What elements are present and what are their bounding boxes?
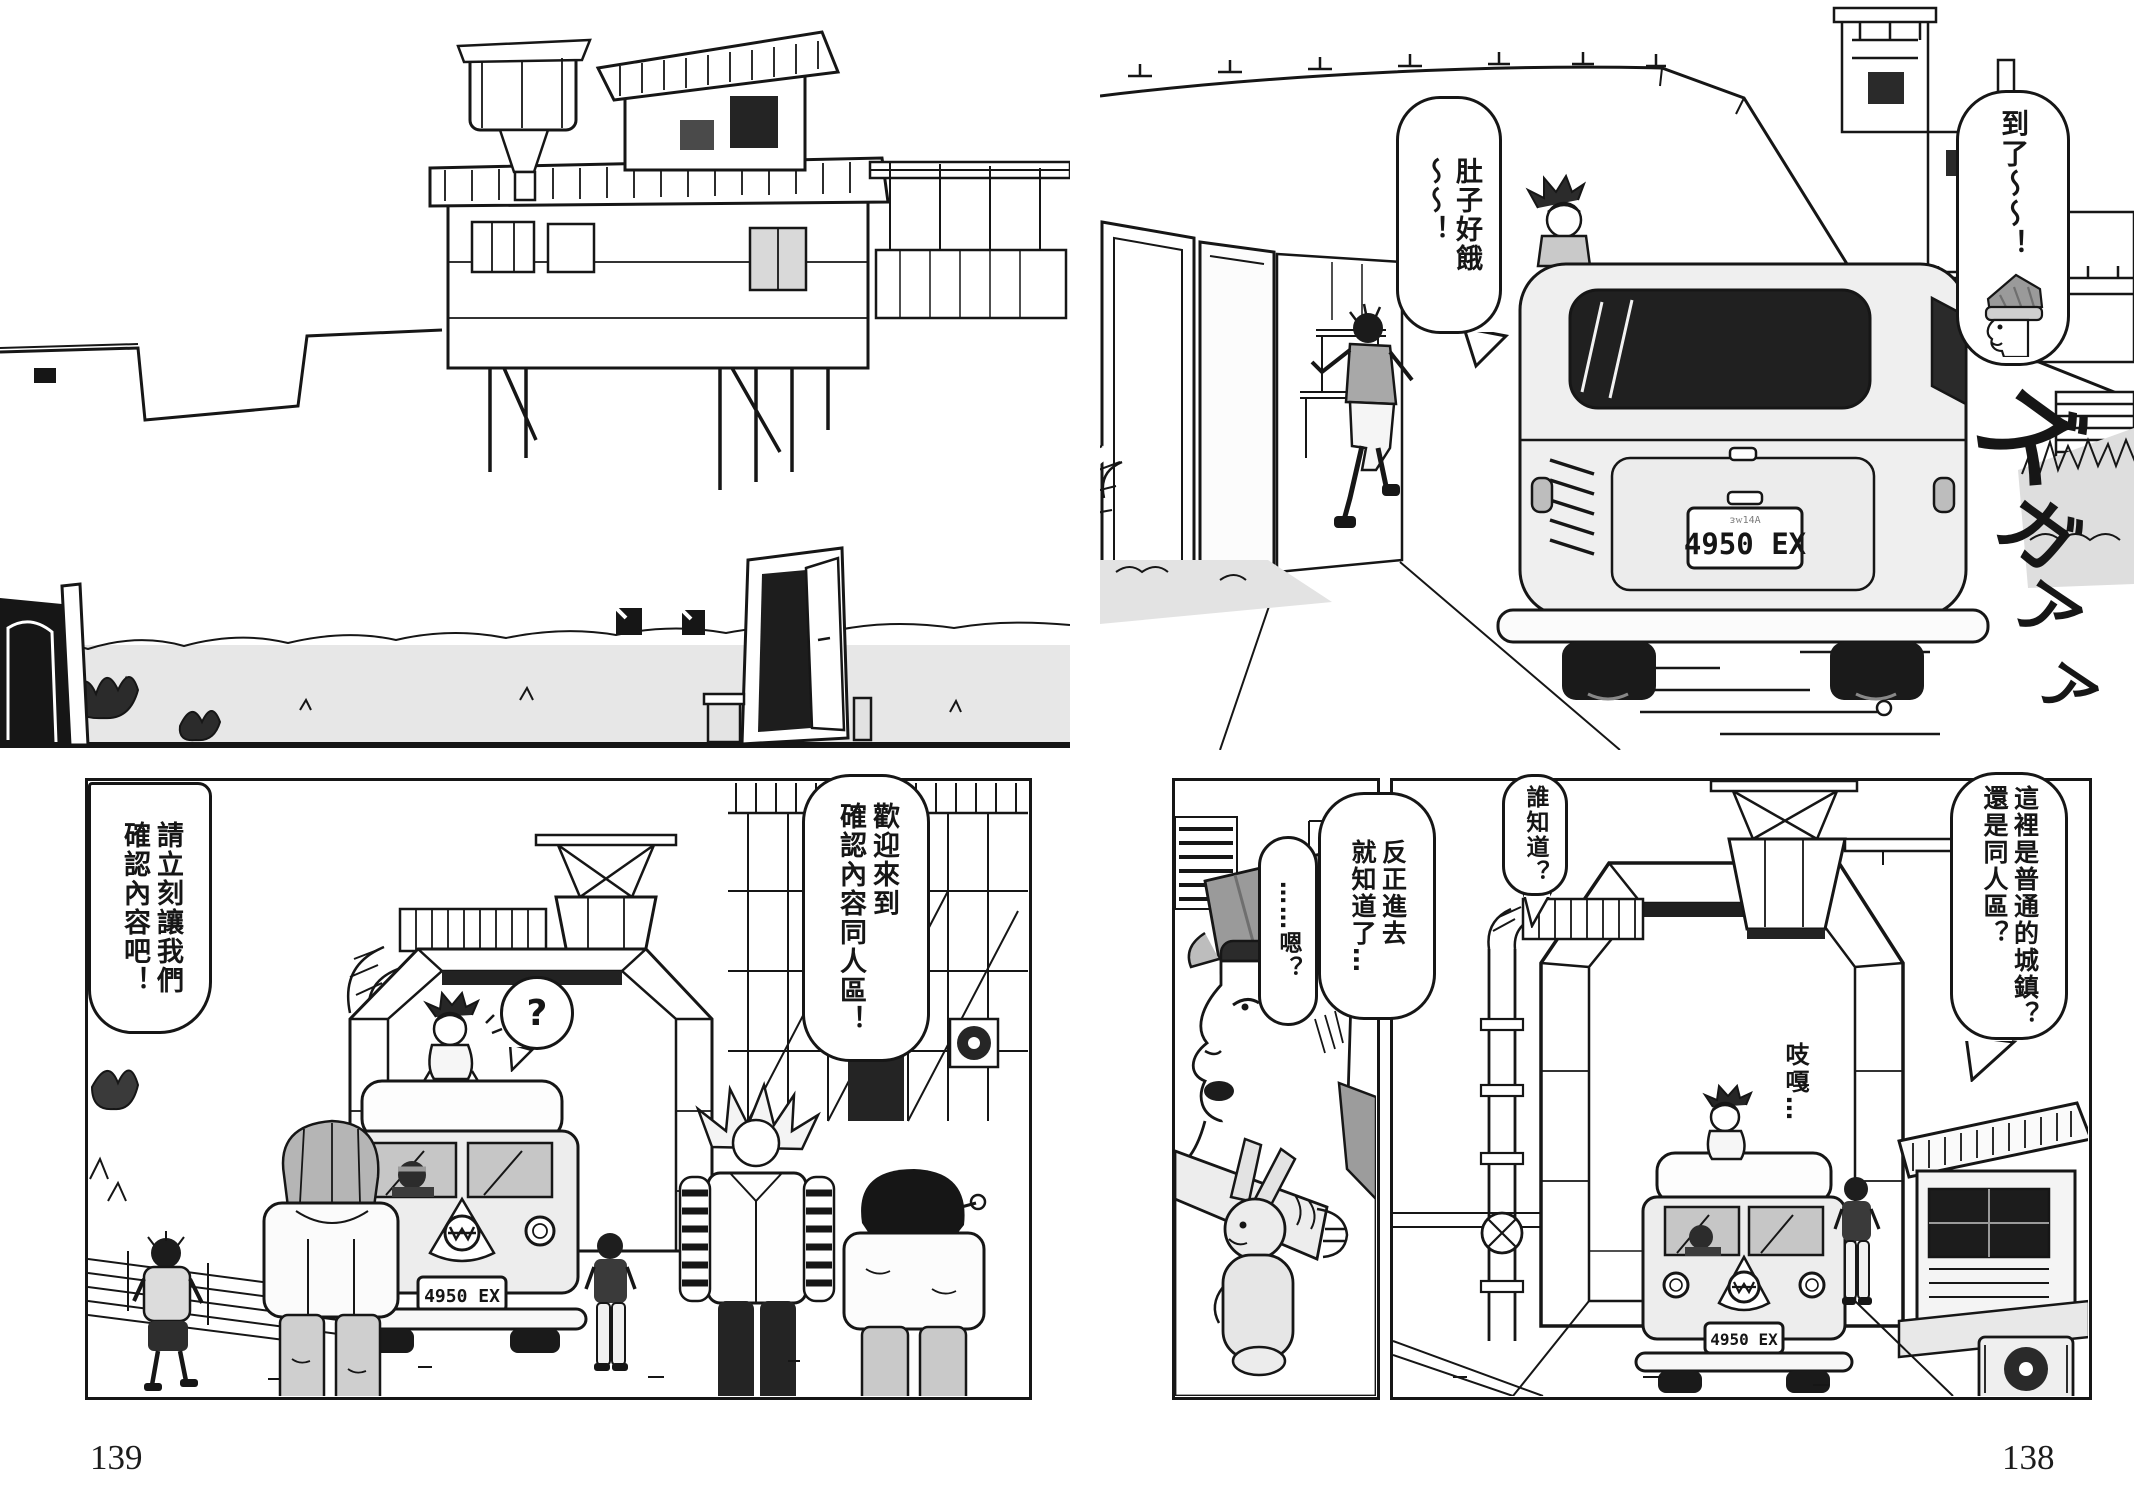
license-plate-front-138: 4950 EX bbox=[1710, 1330, 1778, 1349]
creak-sfx-text: 吱嘎… bbox=[1778, 1042, 1813, 1123]
bubble-please-confirm: 請立刻讓我們 確認內容吧！ bbox=[88, 782, 212, 1034]
knit-cap-man-head bbox=[1980, 271, 2046, 357]
bubble-anyway: 反正進去 就知道了… bbox=[1318, 792, 1436, 1020]
boy-left bbox=[134, 1231, 202, 1391]
vw-bus-front-138: 4950 EX bbox=[1636, 1153, 1852, 1393]
manga-spread: ᴈᴡ14A 4950 EX bbox=[0, 0, 2134, 1500]
girl-on-roof bbox=[1528, 176, 1590, 266]
license-plate-front-139: 4950 EX bbox=[424, 1286, 500, 1307]
license-plate-rear: 4950 EX bbox=[1684, 527, 1807, 561]
bubble-which-district-tail bbox=[1962, 1034, 2018, 1082]
stilt-buildings bbox=[430, 32, 1070, 490]
bubble-hungry-text: 肚子好餓 ～～！ bbox=[1416, 157, 1482, 273]
bubble-hmm: ……嗯？ bbox=[1258, 836, 1318, 1026]
bubble-please-confirm-text: 請立刻讓我們 確認內容吧！ bbox=[117, 821, 183, 995]
bubble-who-knows: 誰知道？ bbox=[1502, 774, 1568, 896]
guard-shack bbox=[1899, 1103, 2088, 1396]
bubble-question-mark: ? bbox=[500, 976, 574, 1050]
bubble-anyway-text: 反正進去 就知道了… bbox=[1347, 839, 1408, 974]
bubble-arrived: 到了～～！ bbox=[1956, 90, 2070, 366]
bubble-question-mark-text: ? bbox=[527, 993, 548, 1034]
boy-near-bus bbox=[586, 1233, 635, 1371]
bubble-which-district-text: 這裡是普通的城鎮？ 還是同人區？ bbox=[1979, 785, 2040, 1028]
panel-hillside-scene bbox=[0, 0, 1070, 750]
page-number-138: 138 bbox=[2002, 1438, 2055, 1478]
bubble-hungry: 肚子好餓 ～～！ bbox=[1396, 96, 1502, 334]
bubble-welcome: 歡迎來到 確認內容同人區！ bbox=[802, 774, 930, 1062]
page-number-139: 139 bbox=[90, 1438, 143, 1478]
bubble-welcome-text: 歡迎來到 確認內容同人區！ bbox=[833, 802, 899, 1034]
striped-sleeve-left bbox=[680, 1177, 710, 1301]
bubble-which-district: 這裡是普通的城鎮？ 還是同人區？ bbox=[1950, 772, 2068, 1040]
svg-text:ᴈᴡ14A: ᴈᴡ14A bbox=[1729, 515, 1760, 526]
striped-sleeve-right bbox=[804, 1177, 834, 1301]
bubble-arrived-text: 到了～～！ bbox=[1996, 109, 2030, 259]
glasses-guy bbox=[844, 1169, 985, 1396]
bubble-hmm-text: ……嗯？ bbox=[1274, 881, 1302, 981]
hoodie-person bbox=[264, 1121, 398, 1396]
bubble-hungry-tail bbox=[1462, 326, 1512, 370]
bubble-who-knows-text: 誰知道？ bbox=[1521, 785, 1549, 885]
bubble-who-knows-tail bbox=[1520, 892, 1554, 928]
vw-bus-rear: ᴈᴡ14A 4950 EX bbox=[1498, 176, 1988, 715]
